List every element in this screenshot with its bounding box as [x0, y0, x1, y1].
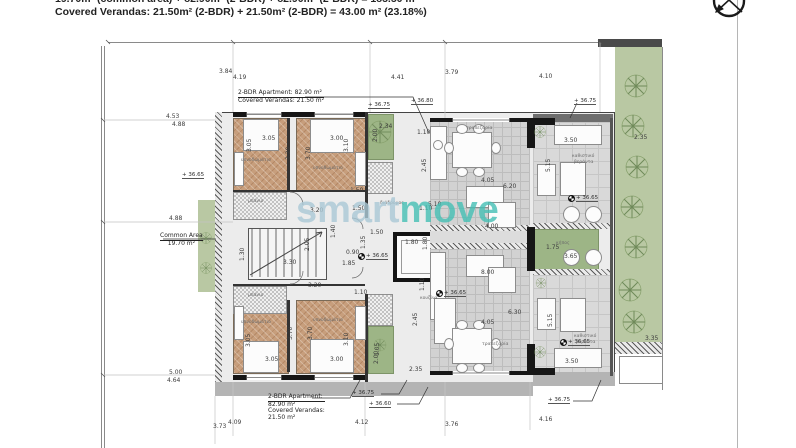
room-label: βεράντα: [574, 160, 593, 165]
room-label: μπάνιο: [248, 199, 263, 204]
dimension-label: 4.12: [355, 420, 368, 426]
dimension-label: 1.10: [420, 278, 426, 291]
room-label: κουζίνα: [420, 296, 437, 301]
dimension-label: 1.10: [354, 290, 367, 296]
dimension-label: 6.30: [508, 310, 521, 316]
dimension-label: 3.65: [564, 254, 577, 260]
dimension-label: 3.00: [330, 357, 343, 363]
elevation-marker: + 36.75: [368, 102, 390, 109]
floor-plan-canvas: 19.70m² (common area) + 82.90m² (2-BDR) …: [0, 0, 796, 448]
dimension-label: 2.34: [379, 124, 392, 130]
dimension-label: 3.00: [330, 136, 343, 142]
level-symbol-icon: [568, 195, 575, 202]
dimension-label: 4.09: [228, 420, 241, 426]
elevation-marker: + 36.65: [182, 172, 204, 179]
dimension-label: 1.10: [417, 130, 430, 136]
dimension-label: 2.05: [305, 238, 311, 251]
dimension-label: 5.00: [169, 370, 182, 376]
dimension-label: 3.05: [247, 139, 253, 152]
dimension-label: 4.10: [539, 74, 552, 80]
dimension-label: 3.05: [265, 357, 278, 363]
dimension-label: 3.30: [283, 260, 296, 266]
dimension-label: 1.30: [240, 248, 246, 261]
room-label: υπνοδωμάτιο: [313, 318, 343, 323]
dimension-label: 2.45: [413, 313, 419, 326]
dimension-label: 5.15: [548, 314, 554, 327]
dimension-label: 4.53: [166, 114, 179, 120]
room-label: μπάνιο: [248, 293, 263, 298]
elevation-marker: + 36.60: [369, 401, 391, 408]
dimension-label: 3.10: [344, 139, 350, 152]
room-label: καθιστικό: [572, 154, 594, 159]
elevation-marker: + 36.65: [358, 253, 388, 260]
level-symbol-icon: [358, 253, 365, 260]
dimension-label: 2.00: [373, 129, 379, 142]
dimension-label: 3.10: [344, 333, 350, 346]
watermark-part2: move: [400, 189, 499, 231]
room-label: τραπεζαρία: [466, 126, 492, 131]
watermark: smartmove: [296, 190, 499, 230]
dimension-label: 3.70: [306, 147, 312, 160]
room-label: καθιστικό: [574, 334, 596, 339]
dimension-label: 1.35: [361, 236, 367, 249]
dimension-label: 4.19: [233, 75, 246, 81]
dimension-label: 2.35: [409, 367, 422, 373]
dimension-label: 1.85: [342, 261, 355, 267]
dimension-label: 3.20: [308, 283, 321, 289]
room-label: τραπεζαρία: [482, 342, 508, 347]
elevation-marker: + 36.75: [548, 397, 570, 404]
dimension-label: 3.20: [286, 147, 292, 160]
room-label: βεράντα: [576, 340, 595, 345]
dimension-label: 4.88: [172, 122, 185, 128]
elevation-marker: + 36.80: [411, 98, 433, 105]
room-label: κήπος: [556, 241, 570, 246]
dimension-label: 3.70: [308, 327, 314, 340]
dimension-label: 3.79: [445, 70, 458, 76]
dimension-label: 8.00: [481, 270, 494, 276]
dimension-label: 1.80: [423, 237, 429, 250]
dimension-label: 4.88: [169, 216, 182, 222]
dimension-label: 4.64: [167, 378, 180, 384]
dimension-label: 4.41: [391, 75, 404, 81]
room-label: υπνοδωμάτιο: [241, 320, 271, 325]
dimension-label: 6.20: [503, 184, 516, 190]
dimension-label: 5.15: [546, 159, 552, 172]
dimension-label: 3.50: [564, 138, 577, 144]
elevation-marker: + 36.75: [574, 98, 596, 105]
dimension-label: 3.05: [246, 334, 252, 347]
dimension-label: 4.05: [481, 178, 494, 184]
dimension-label: 3.35: [645, 336, 658, 342]
dimension-label: 3.05: [262, 136, 275, 142]
dimension-label: 1.80: [405, 240, 418, 246]
dimension-label: 3.84: [219, 69, 232, 75]
dimension-label: 3.76: [445, 422, 458, 428]
dimension-label: 3.70: [288, 327, 294, 340]
dimension-label: 2.35: [634, 135, 647, 141]
dimension-label: 2.45: [422, 159, 428, 172]
elevation-marker: + 36.65: [568, 195, 598, 202]
room-label: υπνοδωμάτιο: [313, 166, 343, 171]
elevation-marker: + 36.65: [436, 290, 466, 297]
dimension-label: 4.05: [481, 320, 494, 326]
dimension-label: 3.73: [213, 424, 226, 430]
elevation-marker: + 36.75: [352, 390, 374, 397]
dimension-label: 3.50: [565, 359, 578, 365]
dimension-label: 4.16: [539, 417, 552, 423]
dimension-label: 2.00: [374, 351, 380, 364]
watermark-part1: smart: [296, 189, 400, 231]
room-label: υπνοδωμάτιο: [241, 158, 271, 163]
level-symbol-icon: [560, 339, 567, 346]
